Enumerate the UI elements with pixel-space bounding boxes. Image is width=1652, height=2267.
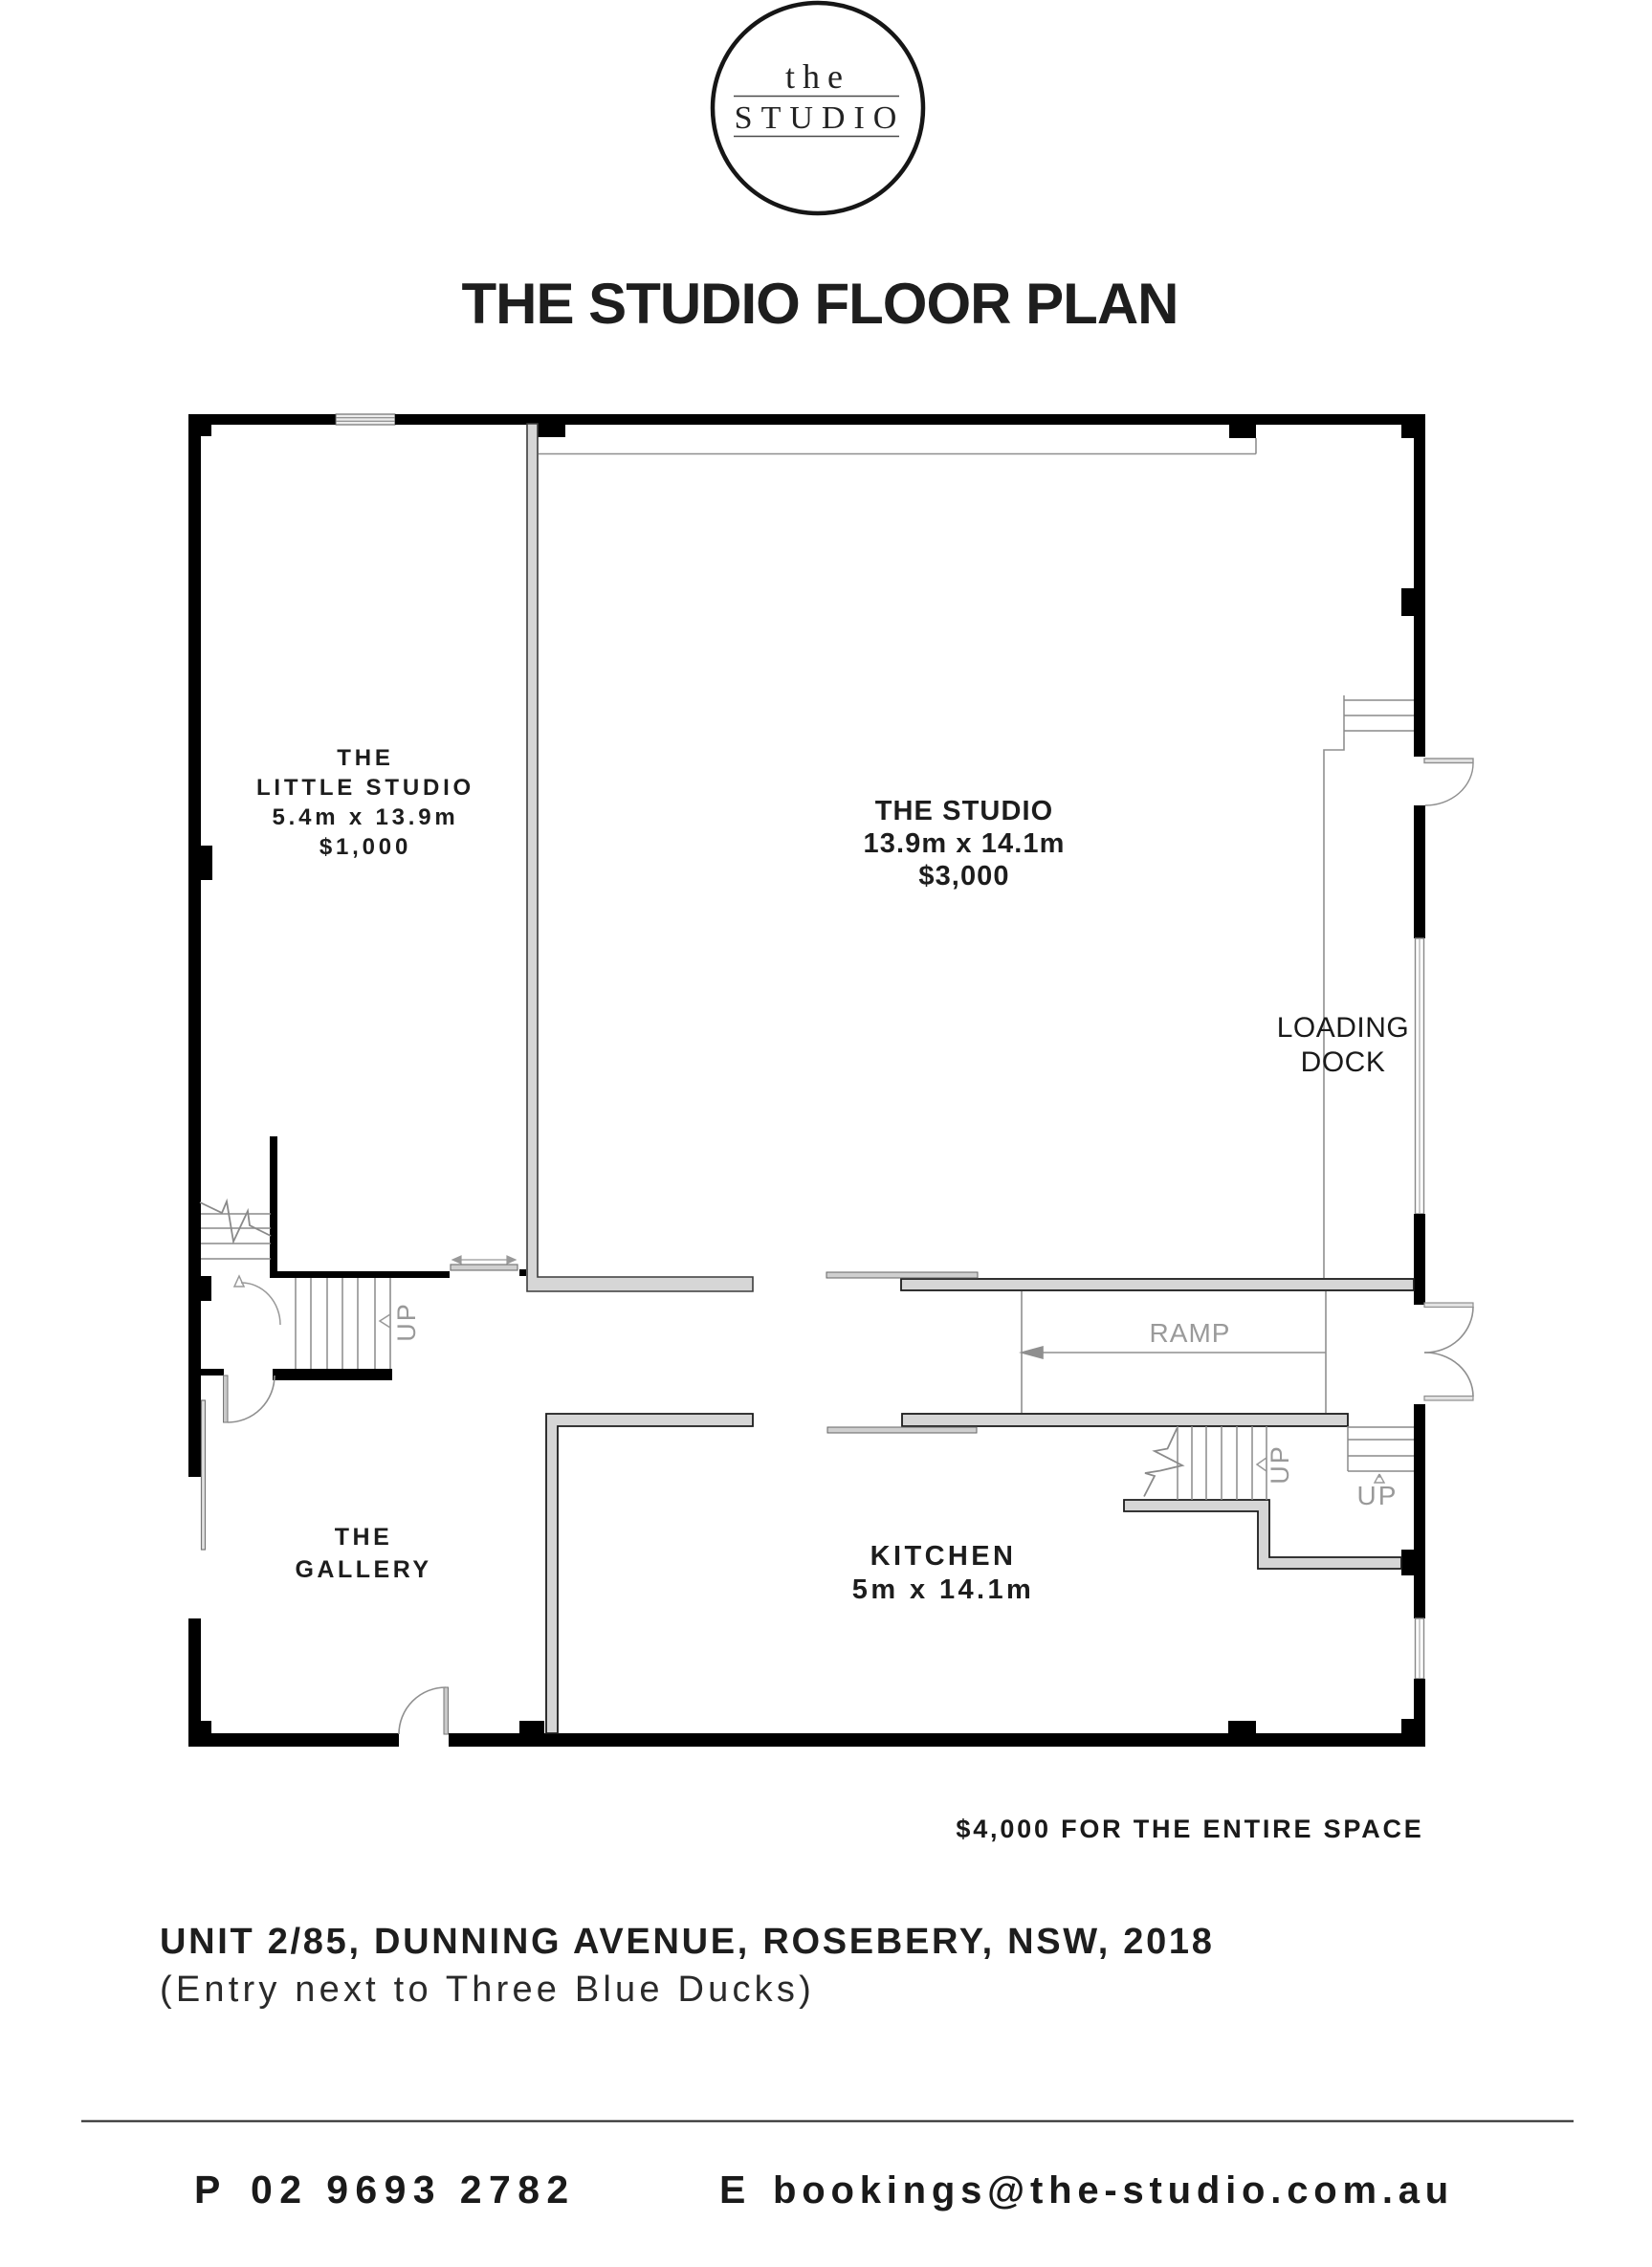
svg-text:KITCHEN: KITCHEN — [870, 1541, 1017, 1572]
svg-text:E: E — [719, 2168, 745, 2212]
svg-text:UP: UP — [1266, 1444, 1294, 1485]
svg-text:P: P — [194, 2168, 220, 2212]
svg-text:RAMP: RAMP — [1150, 1318, 1231, 1348]
svg-text:LITTLE STUDIO: LITTLE STUDIO — [256, 775, 474, 801]
svg-text:DOCK: DOCK — [1301, 1046, 1386, 1078]
svg-text:5.4m x 13.9m: 5.4m x 13.9m — [272, 804, 458, 830]
svg-text:UP: UP — [392, 1302, 421, 1342]
svg-text:LOADING: LOADING — [1277, 1012, 1410, 1044]
svg-text:$4,000 FOR THE ENTIRE SPACE: $4,000 FOR THE ENTIRE SPACE — [956, 1815, 1423, 1843]
svg-text:$1,000: $1,000 — [319, 834, 411, 860]
svg-text:THE STUDIO FLOOR PLAN: THE STUDIO FLOOR PLAN — [462, 272, 1178, 336]
svg-text:UNIT 2/85, DUNNING AVENUE, ROS: UNIT 2/85, DUNNING AVENUE, ROSEBERY, NSW… — [160, 1922, 1215, 1962]
svg-text:UP: UP — [1357, 1481, 1399, 1510]
svg-text:bookings@the-studio.com.au: bookings@the-studio.com.au — [773, 2169, 1454, 2212]
svg-text:THE STUDIO: THE STUDIO — [875, 796, 1054, 826]
svg-text:GALLERY: GALLERY — [295, 1556, 431, 1583]
svg-text:THE: THE — [335, 1524, 393, 1551]
svg-text:5m x 14.1m: 5m x 14.1m — [852, 1574, 1034, 1605]
svg-text:$3,000: $3,000 — [918, 861, 1009, 891]
svg-text:(Entry next to Three Blue Duck: (Entry next to Three Blue Ducks) — [160, 1970, 815, 2010]
svg-text:13.9m x 14.1m: 13.9m x 14.1m — [864, 828, 1066, 859]
svg-text:STUDIO: STUDIO — [735, 100, 906, 136]
svg-text:the: the — [785, 57, 850, 96]
svg-text:THE: THE — [337, 745, 393, 771]
svg-text:02 9693 2782: 02 9693 2782 — [251, 2168, 576, 2212]
